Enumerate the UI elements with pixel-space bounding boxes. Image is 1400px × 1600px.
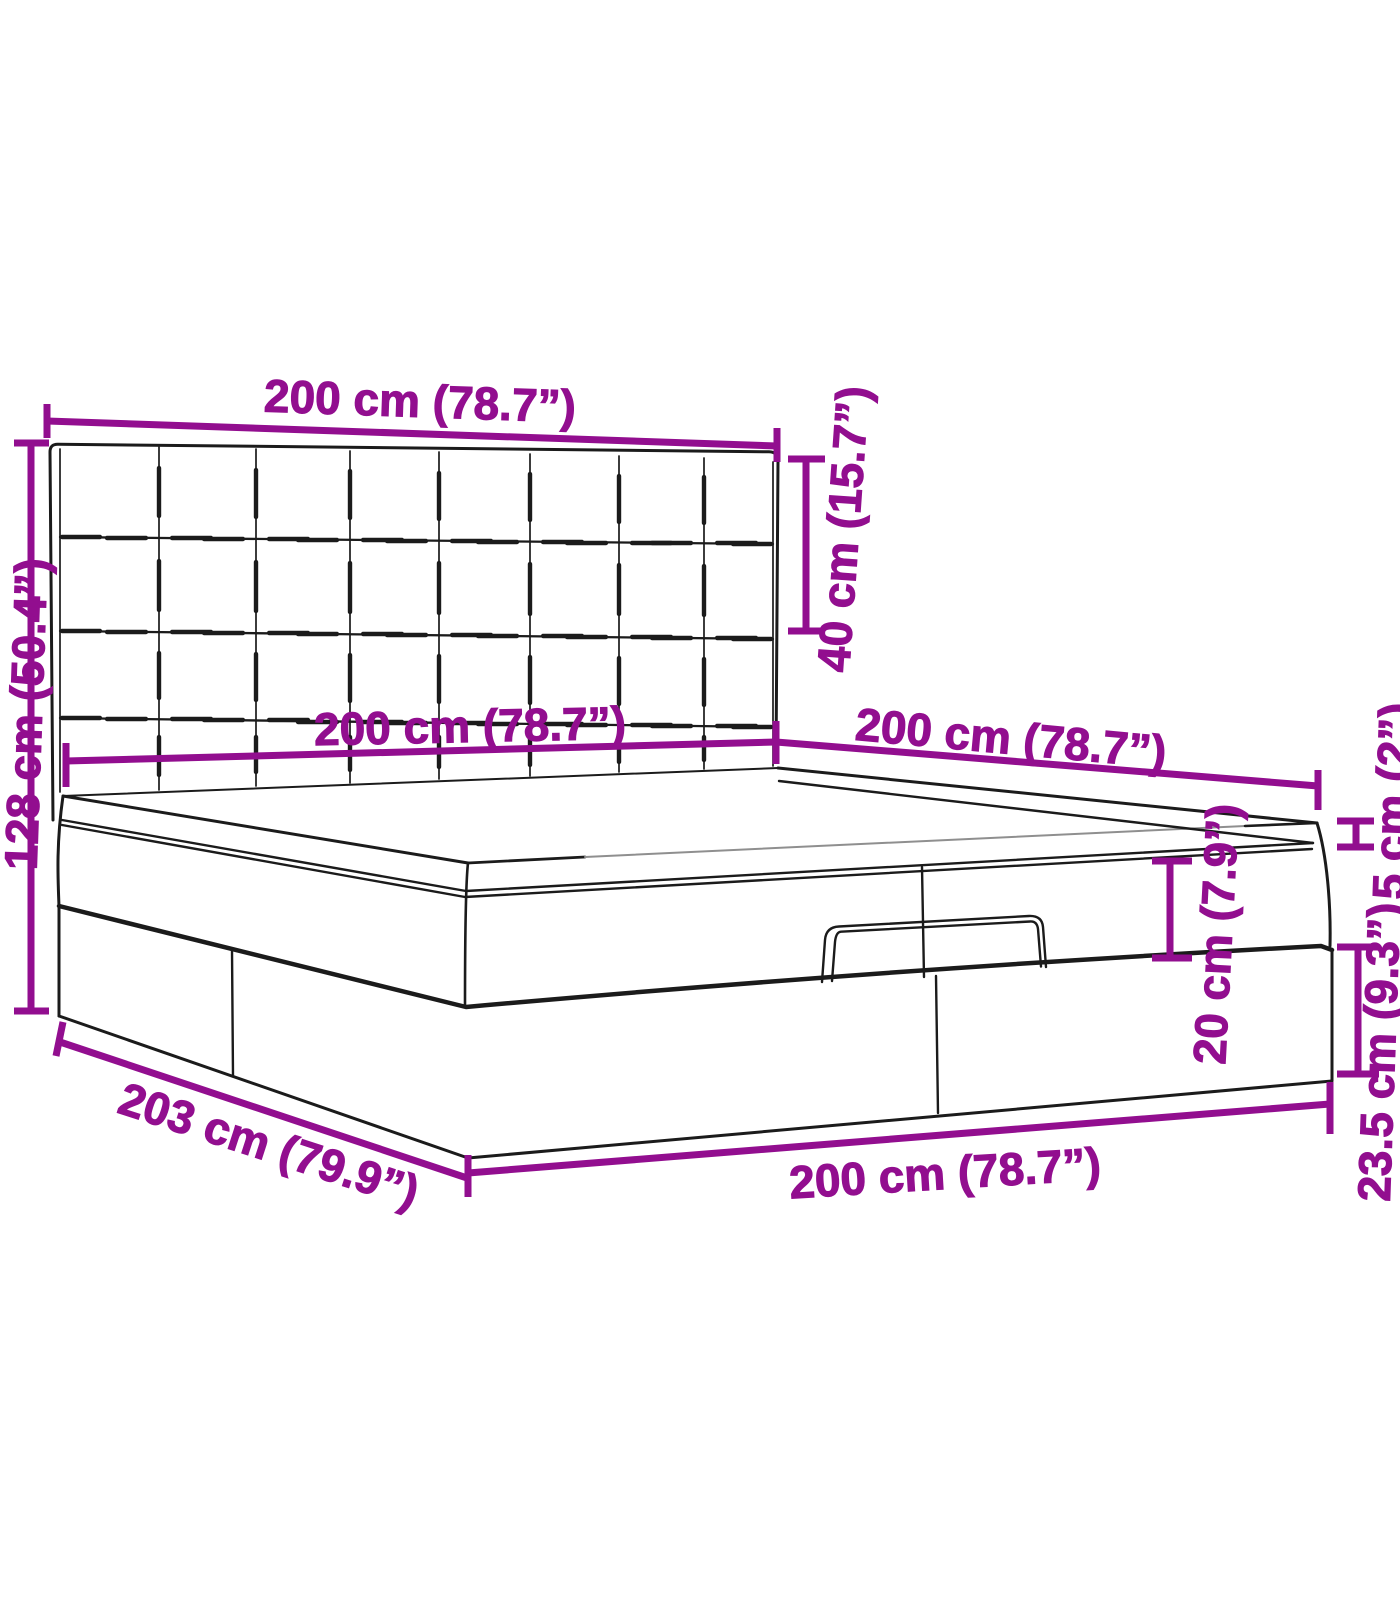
svg-text:5 cm (2”): 5 cm (2”) (1363, 702, 1400, 901)
svg-text:200 cm (78.7”): 200 cm (78.7”) (263, 370, 577, 433)
svg-text:200 cm (78.7”): 200 cm (78.7”) (314, 697, 627, 756)
